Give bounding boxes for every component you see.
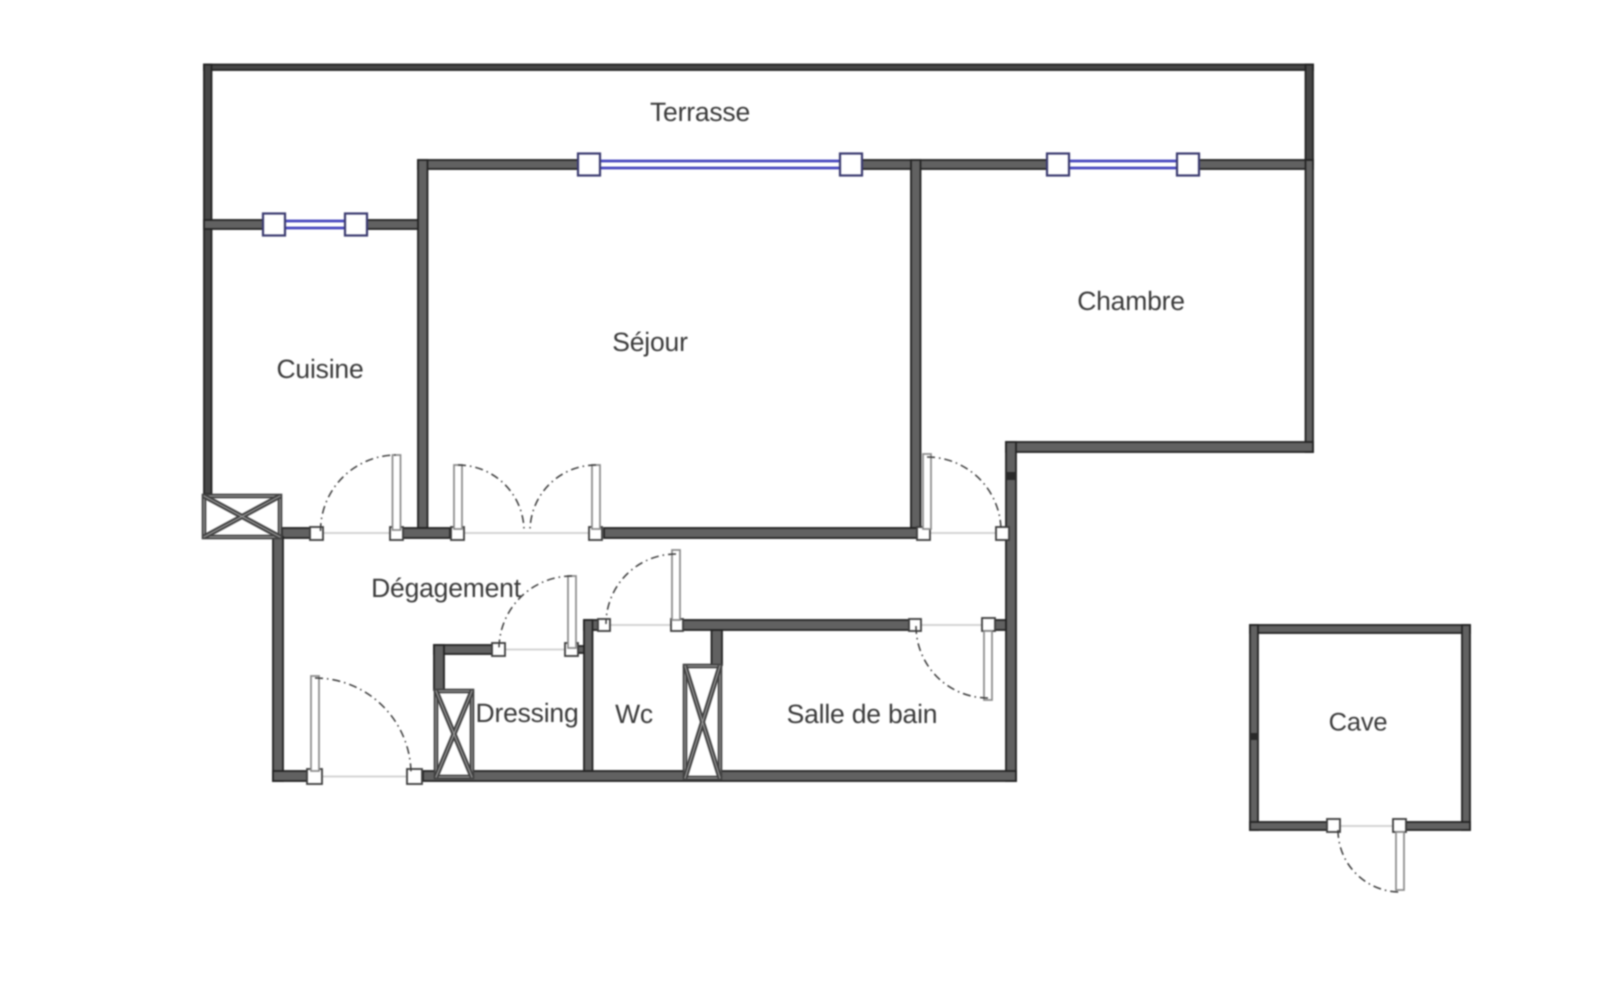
svg-text:Cuisine: Cuisine <box>277 354 364 384</box>
svg-text:Dégagement: Dégagement <box>371 573 522 603</box>
svg-text:Wc: Wc <box>615 699 653 729</box>
svg-text:Chambre: Chambre <box>1077 286 1185 316</box>
svg-text:Salle de bain: Salle de bain <box>787 699 938 729</box>
svg-text:Séjour: Séjour <box>612 327 688 357</box>
svg-text:Dressing: Dressing <box>476 698 579 728</box>
svg-text:Cave: Cave <box>1329 709 1388 737</box>
svg-text:Terrasse: Terrasse <box>650 97 750 127</box>
